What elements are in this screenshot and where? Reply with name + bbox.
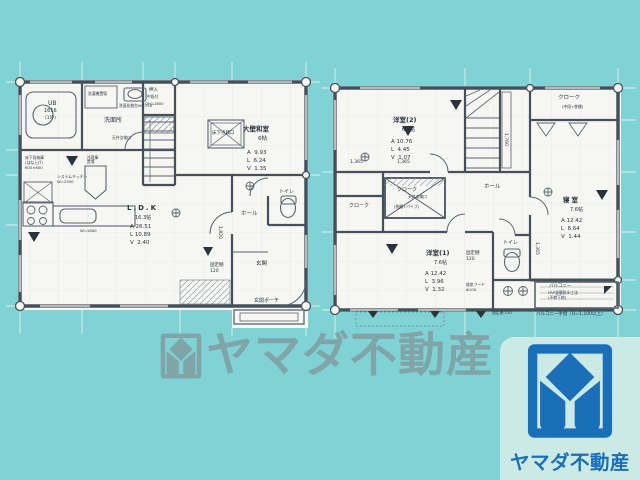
porch-tile-hatch	[180, 280, 230, 304]
watermark: ヤマダ不動産	[160, 332, 494, 379]
brand-logo-text: ヤマダ不動産	[500, 446, 640, 475]
floor1-plan	[16, 78, 311, 329]
floor2-plan	[331, 84, 623, 327]
brand-card: ヤマダ不動産	[500, 337, 640, 480]
brand-logo-icon	[527, 341, 613, 441]
watermark-text: ヤマダ不動産	[206, 332, 494, 379]
roof-below-outline	[356, 312, 444, 326]
floorplan-sheet: UB1616(1坪)洗面所洗濯機置場洗面化粧台W=750天井点検口押入中段付DH…	[0, 0, 640, 480]
watermark-logo-icon	[160, 333, 202, 379]
